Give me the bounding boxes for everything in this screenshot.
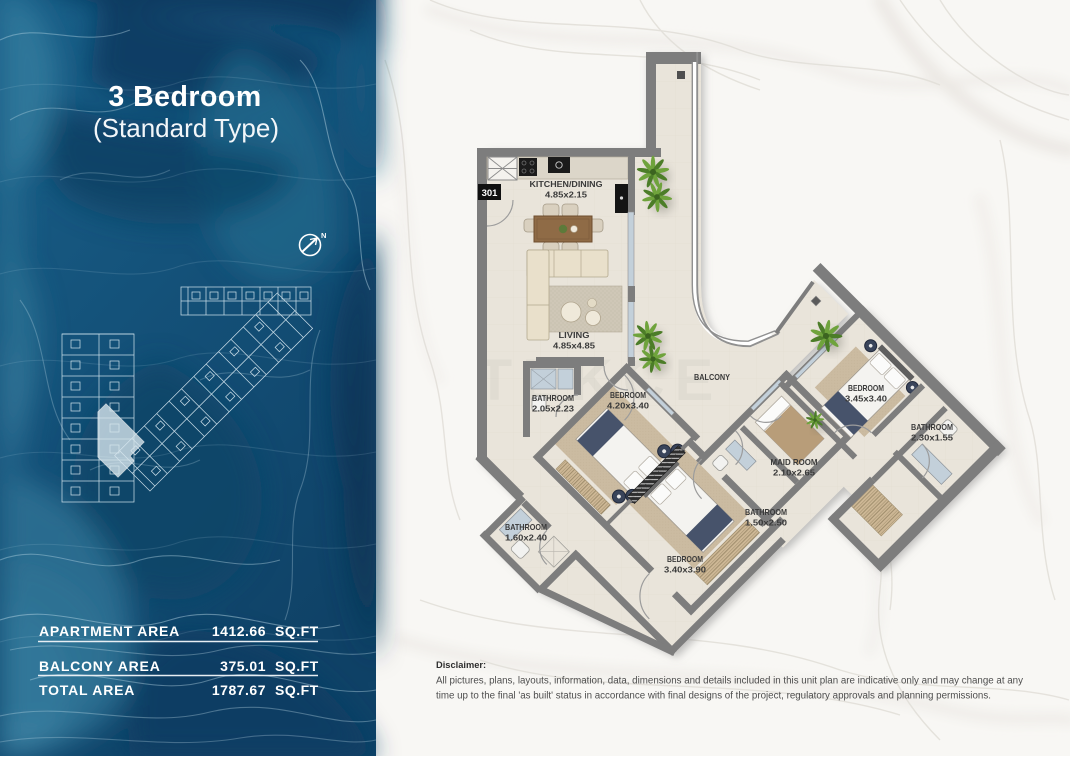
svg-text:N: N	[321, 231, 326, 240]
svg-text:1.50x2.50: 1.50x2.50	[745, 519, 788, 528]
svg-text:4.85x4.85: 4.85x4.85	[553, 342, 596, 351]
svg-text:APARTMENT AREA: APARTMENT AREA	[39, 623, 180, 639]
svg-text:BALCONY AREA: BALCONY AREA	[39, 658, 161, 674]
svg-text:SQ.FT: SQ.FT	[275, 682, 319, 698]
svg-text:3.45x3.40: 3.45x3.40	[845, 395, 888, 404]
svg-text:2.30x1.55: 2.30x1.55	[911, 434, 954, 443]
svg-text:MAID ROOM: MAID ROOM	[771, 458, 818, 467]
svg-text:BALCONY: BALCONY	[694, 373, 730, 382]
svg-text:1.60x2.40: 1.60x2.40	[505, 534, 548, 543]
svg-text:TOTAL AREA: TOTAL AREA	[39, 682, 135, 698]
svg-text:SQ.FT: SQ.FT	[275, 623, 319, 639]
svg-text:3 Bedroom: 3 Bedroom	[108, 81, 261, 113]
svg-text:4.20x3.40: 4.20x3.40	[607, 402, 650, 411]
svg-text:2.10x2.65: 2.10x2.65	[773, 469, 816, 478]
svg-text:1787.67: 1787.67	[212, 682, 266, 698]
svg-text:time up to the final 'as built: time up to the final 'as built' status i…	[436, 691, 991, 702]
svg-text:BATHROOM: BATHROOM	[911, 423, 953, 432]
svg-text:BATHROOM: BATHROOM	[532, 394, 574, 403]
svg-text:SQ.FT: SQ.FT	[275, 658, 319, 674]
svg-text:3.40x3.90: 3.40x3.90	[664, 566, 707, 575]
svg-text:2.05x2.23: 2.05x2.23	[532, 405, 575, 414]
svg-text:4.85x2.15: 4.85x2.15	[545, 191, 588, 200]
svg-text:BATHROOM: BATHROOM	[745, 508, 787, 517]
svg-text:1412.66: 1412.66	[212, 623, 266, 639]
svg-text:301: 301	[482, 188, 499, 199]
svg-text:BEDROOM: BEDROOM	[667, 555, 703, 564]
svg-text:(Standard Type): (Standard Type)	[93, 113, 279, 143]
svg-text:Disclaimer:: Disclaimer:	[436, 660, 486, 670]
svg-text:All pictures, plans, layouts,: All pictures, plans, layouts, informatio…	[436, 676, 1023, 687]
svg-text:KITCHEN/DINING: KITCHEN/DINING	[530, 180, 603, 189]
svg-text:375.01: 375.01	[220, 658, 266, 674]
svg-text:BATHROOM: BATHROOM	[505, 523, 547, 532]
svg-text:BEDROOM: BEDROOM	[610, 391, 646, 400]
svg-text:BEDROOM: BEDROOM	[848, 384, 884, 393]
svg-text:LIVING: LIVING	[559, 331, 590, 340]
